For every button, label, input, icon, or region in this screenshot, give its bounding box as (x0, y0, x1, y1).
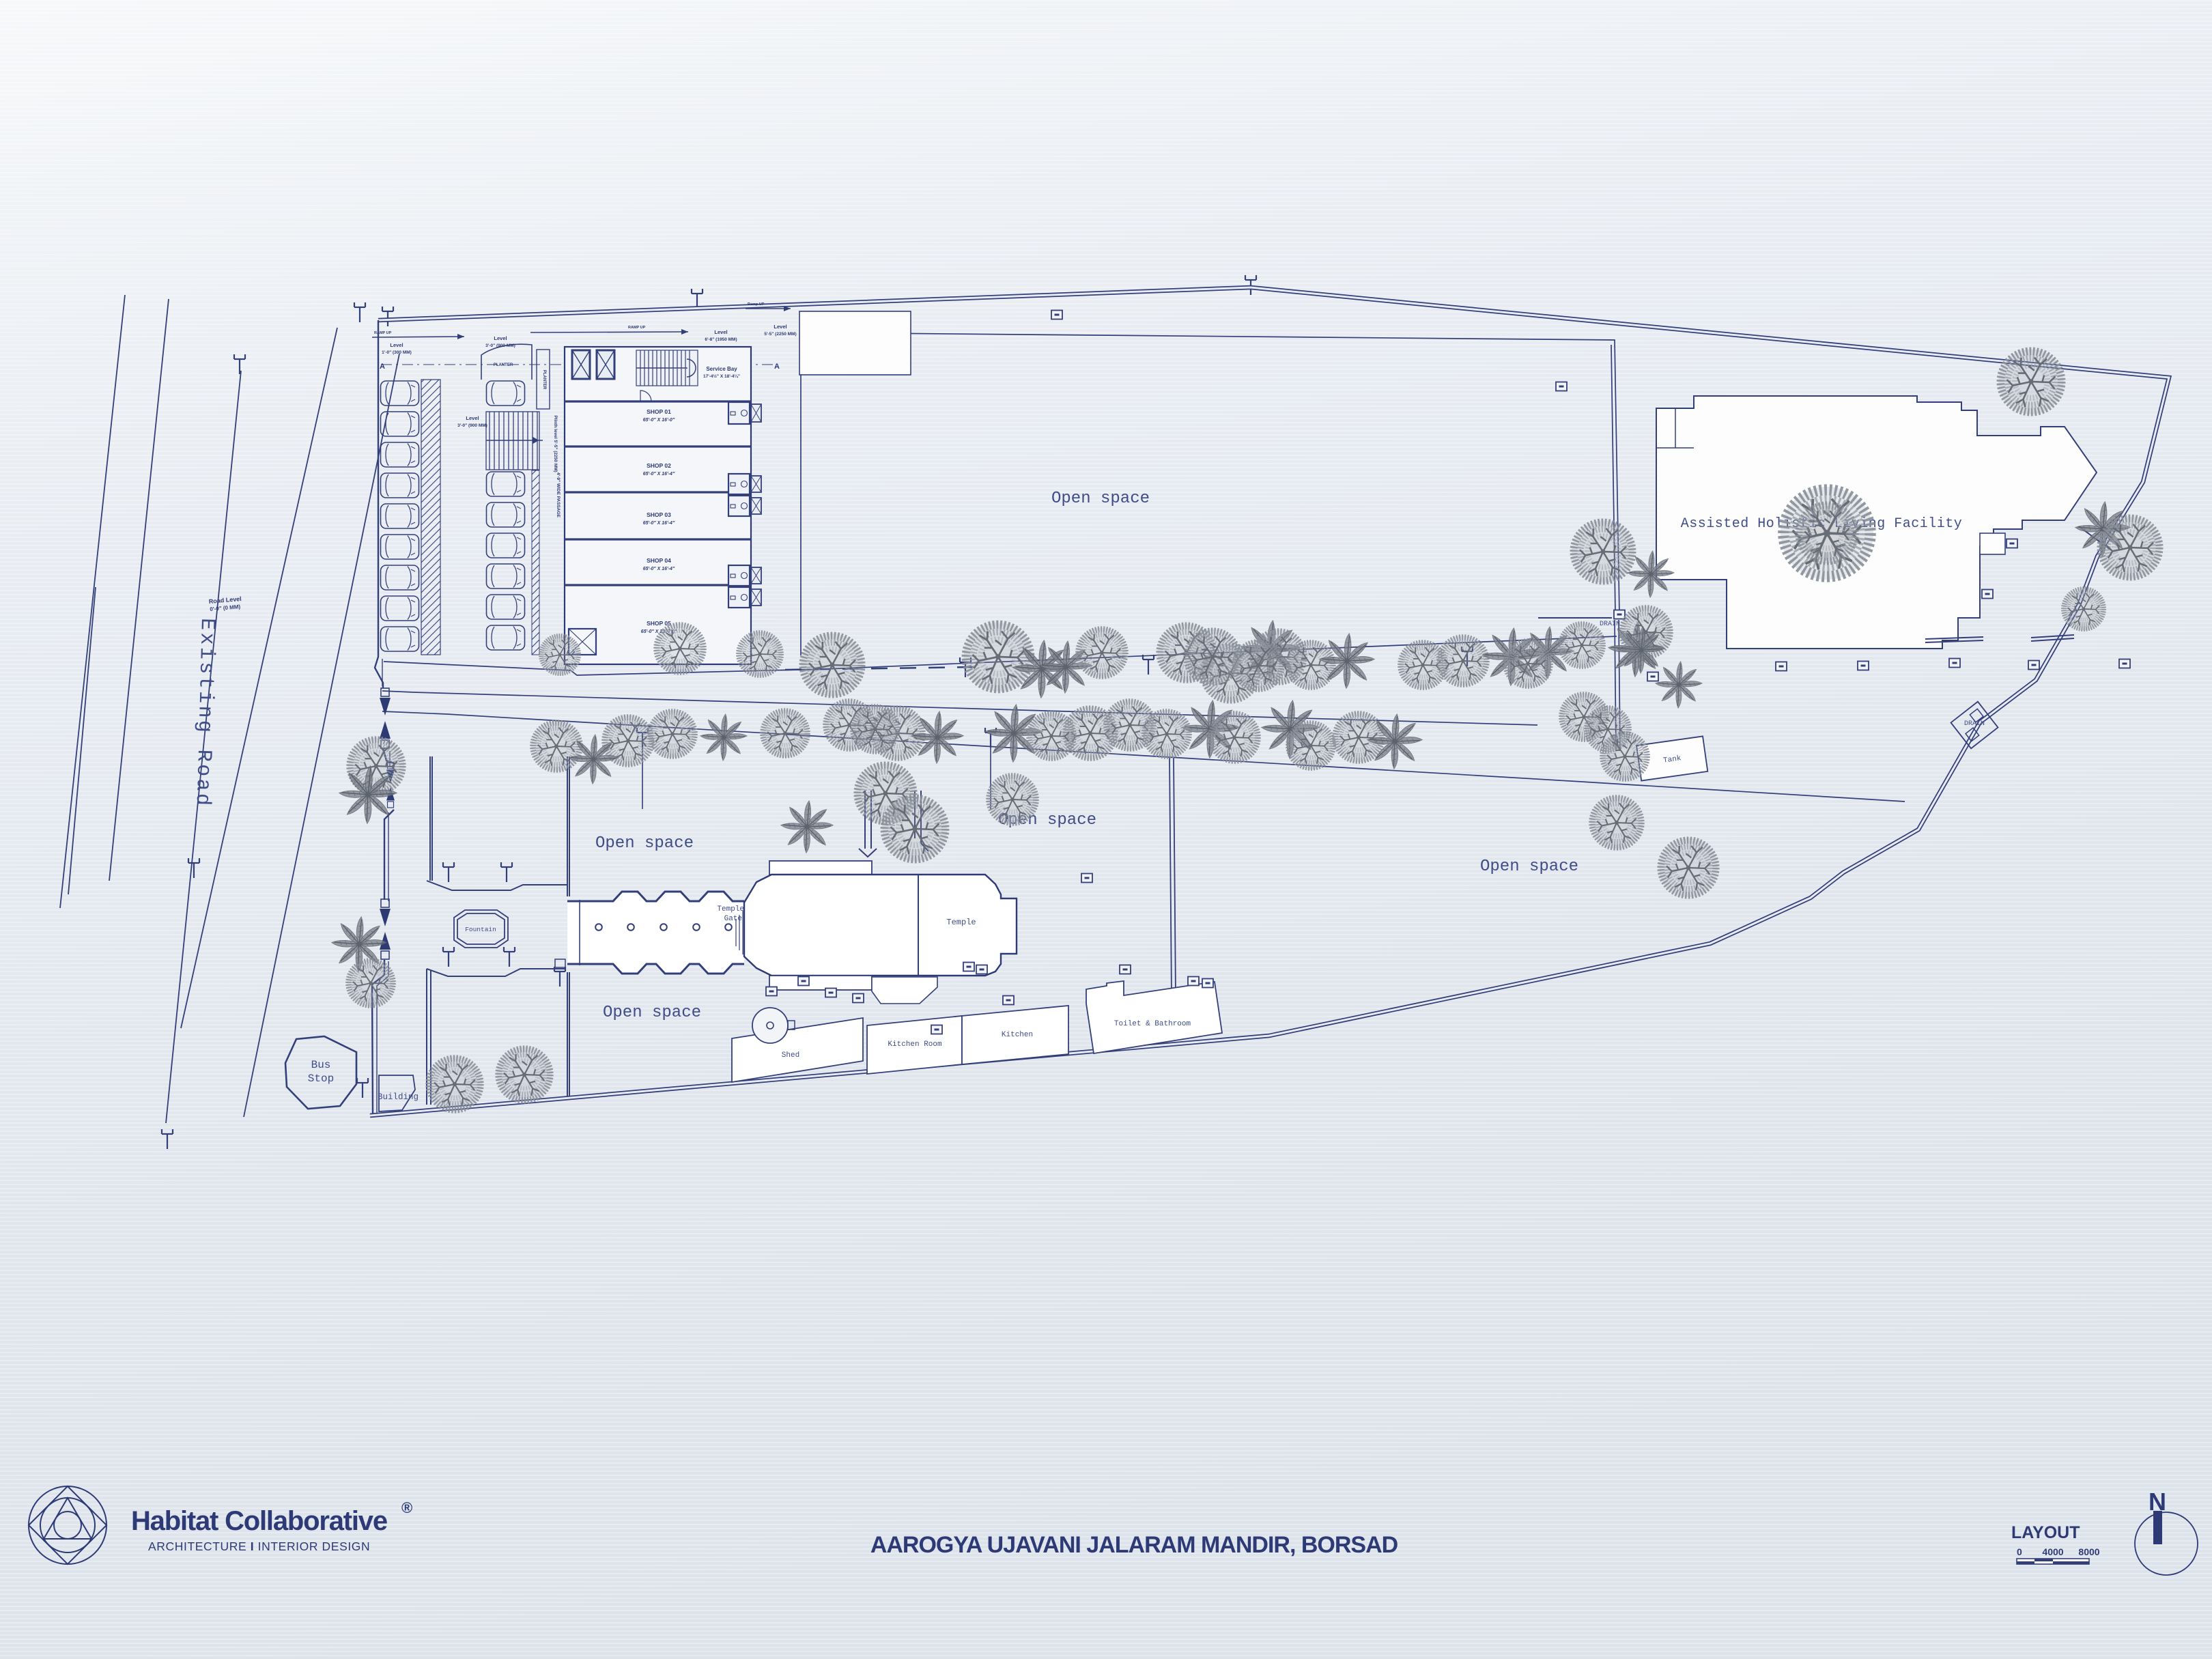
svg-text:Fountain: Fountain (465, 926, 496, 933)
svg-text:Building: Building (378, 1092, 419, 1102)
svg-text:65'-0" X 16'-4": 65'-0" X 16'-4" (643, 567, 675, 571)
svg-text:65'-0" X 16'-0": 65'-0" X 16'-0" (643, 418, 675, 423)
svg-text:Temple: Temple (717, 905, 744, 913)
svg-text:Level: Level (390, 342, 403, 348)
svg-text:Level: Level (714, 329, 727, 335)
svg-text:A: A (774, 363, 780, 371)
svg-text:Open space: Open space (1051, 490, 1150, 508)
svg-text:Level: Level (774, 324, 786, 330)
svg-text:Bus: Bus (311, 1059, 331, 1071)
svg-text:Kitchen Room: Kitchen Room (888, 1040, 942, 1049)
svg-text:Stop: Stop (308, 1073, 334, 1085)
svg-text:DRAIN: DRAIN (1964, 720, 1985, 728)
svg-text:Plinth level 5'-5" (2250 MM): Plinth level 5'-5" (2250 MM) (553, 415, 558, 472)
svg-text:PLANTER: PLANTER (494, 363, 513, 367)
svg-text:Service Bay: Service Bay (706, 366, 737, 372)
svg-text:AAROGYA UJAVANI JALARAM MANDI: AAROGYA UJAVANI JALARAM MANDIR, BORSAD (870, 1532, 1398, 1558)
svg-text:3'-0" (900 MM): 3'-0" (900 MM) (485, 343, 515, 348)
svg-text:SHOP 03: SHOP 03 (647, 511, 671, 518)
svg-text:Toilet & Bathroom: Toilet & Bathroom (1114, 1020, 1191, 1028)
svg-text:4000: 4000 (2042, 1546, 2063, 1557)
svg-text:Shed: Shed (782, 1051, 799, 1060)
svg-text:N: N (2149, 1488, 2166, 1516)
svg-text:®: ® (401, 1499, 412, 1516)
svg-text:Level: Level (494, 335, 507, 341)
svg-text:1'-0" (300 MM): 1'-0" (300 MM) (382, 350, 412, 355)
svg-text:Habitat Collaborative: Habitat Collaborative (131, 1506, 387, 1536)
svg-text:Existing Road: Existing Road (190, 618, 218, 808)
svg-text:17'-4½" X 18'-4¼": 17'-4½" X 18'-4¼" (703, 373, 740, 379)
svg-text:Temple: Temple (946, 918, 976, 927)
svg-text:Level: Level (466, 415, 479, 421)
svg-text:6'-8" (1950 MM): 6'-8" (1950 MM) (705, 337, 737, 342)
svg-text:65'-0" X 16'-4": 65'-0" X 16'-4" (643, 521, 675, 526)
svg-text:Open space: Open space (595, 834, 694, 853)
svg-text:SHOP 02: SHOP 02 (647, 462, 671, 469)
svg-text:Ramp UP: Ramp UP (748, 302, 765, 307)
svg-text:Open space: Open space (603, 1004, 701, 1022)
svg-text:SHOP 01: SHOP 01 (647, 408, 671, 415)
svg-text:0: 0 (2017, 1546, 2022, 1557)
svg-text:PLANTER: PLANTER (542, 370, 546, 390)
svg-text:A: A (380, 363, 385, 371)
svg-text:5'-5" (2250 MM): 5'-5" (2250 MM) (764, 332, 796, 337)
svg-text:SHOP 04: SHOP 04 (647, 557, 671, 564)
svg-text:Open space: Open space (1480, 857, 1578, 876)
svg-text:8000: 8000 (2078, 1546, 2099, 1557)
svg-text:RAMP UP: RAMP UP (628, 326, 646, 330)
svg-text:3'-0" (900 MM): 3'-0" (900 MM) (457, 423, 487, 428)
svg-text:RAMP UP: RAMP UP (374, 331, 392, 335)
svg-text:65'-0" X 16'-4": 65'-0" X 16'-4" (643, 472, 675, 477)
svg-text:Kitchen: Kitchen (1002, 1031, 1033, 1039)
svg-text:DRAIN: DRAIN (1600, 621, 1620, 628)
svg-text:LAYOUT: LAYOUT (2011, 1523, 2080, 1542)
svg-text:ARCHITECTURE I INTERIOR DESIGN: ARCHITECTURE I INTERIOR DESIGN (148, 1540, 370, 1553)
svg-text:4'-9" WIDE PASSAGE: 4'-9" WIDE PASSAGE (556, 472, 561, 518)
